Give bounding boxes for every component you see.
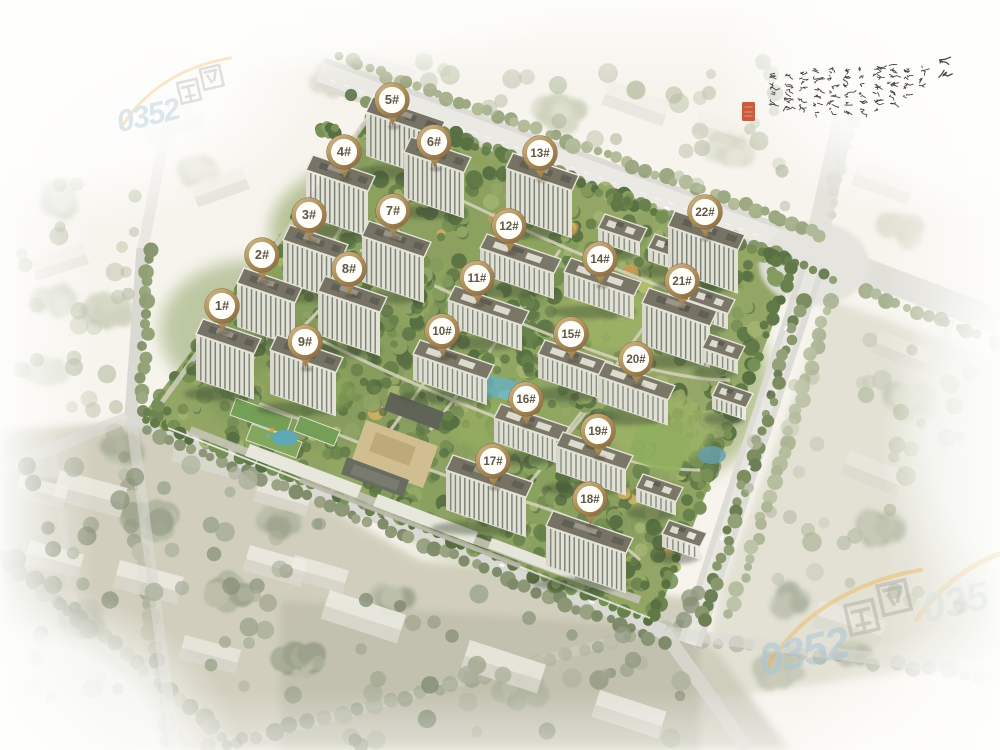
svg-text:10#: 10# — [432, 325, 452, 338]
svg-text:3#: 3# — [302, 207, 316, 222]
svg-text:16#: 16# — [516, 393, 536, 406]
svg-text:13#: 13# — [530, 147, 550, 160]
svg-text:17#: 17# — [483, 455, 503, 468]
svg-text:12#: 12# — [499, 220, 519, 233]
svg-text:15#: 15# — [561, 328, 581, 341]
svg-text:19#: 19# — [588, 425, 608, 438]
svg-text:5#: 5# — [385, 92, 399, 107]
svg-text:20#: 20# — [626, 353, 646, 366]
svg-text:2#: 2# — [255, 247, 269, 262]
svg-text:8#: 8# — [342, 261, 356, 276]
svg-text:6#: 6# — [427, 134, 441, 149]
svg-text:1#: 1# — [215, 298, 229, 313]
svg-text:18#: 18# — [580, 493, 600, 506]
svg-text:14#: 14# — [590, 253, 610, 266]
svg-text:11#: 11# — [468, 272, 487, 285]
svg-text:21#: 21# — [672, 275, 692, 288]
svg-text:7#: 7# — [386, 203, 400, 218]
svg-text:4#: 4# — [337, 144, 351, 159]
svg-text:9#: 9# — [298, 334, 312, 349]
svg-text:22#: 22# — [695, 206, 715, 219]
